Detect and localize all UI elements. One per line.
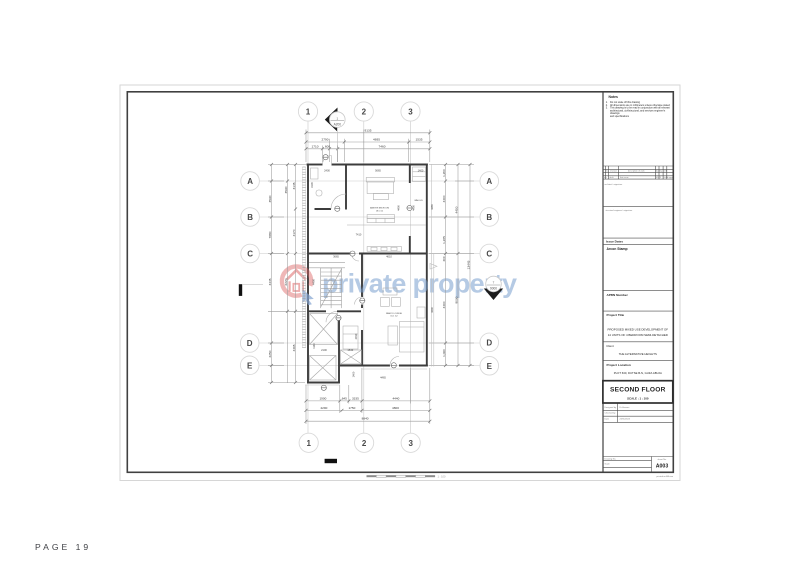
svg-text:4440: 4440 [392,396,399,400]
svg-text:B: B [247,213,253,222]
svg-text:1900: 1900 [319,396,326,400]
svg-text:Designed by: Designed by [605,407,618,409]
svg-text:23/05/2023: 23/05/2023 [620,419,631,421]
svg-text:draft: draft [610,176,614,179]
svg-text:1535: 1535 [416,138,423,142]
svg-text:600: 600 [325,144,330,148]
svg-text:1140: 1140 [312,343,316,349]
svg-text:1540: 1540 [347,348,353,352]
svg-text:2790: 2790 [322,138,329,142]
svg-text:C: C [486,250,492,259]
svg-text:1,200: 1,200 [442,169,446,177]
svg-text:5665: 5665 [375,169,381,173]
svg-text:Issue Dates: Issue Dates [606,239,623,243]
svg-text:645: 645 [342,396,347,400]
svg-text:MASTER BEDROOM: MASTER BEDROOM [370,207,390,210]
svg-text:3335: 3335 [352,396,359,400]
svg-text:9135: 9135 [365,128,372,132]
svg-text:E: E [487,362,493,371]
svg-text:3590: 3590 [284,186,288,193]
svg-text:A: A [486,177,492,186]
svg-text:A200: A200 [334,122,342,126]
svg-text:4465: 4465 [380,375,386,379]
svg-text:no.: no. [606,171,609,173]
svg-text:2930: 2930 [354,333,358,339]
svg-text:Checked by: Checked by [605,413,617,415]
svg-text:4610: 4610 [386,254,392,258]
svg-text:4400: 4400 [312,278,316,285]
svg-text:4440: 4440 [430,307,434,313]
svg-text:D: D [486,338,492,347]
svg-text:14 UNITS OF 4 BEDROOM SEMI-DET: 14 UNITS OF 4 BEDROOM SEMI-DETACHED [608,333,668,337]
svg-text:B: B [486,213,492,222]
svg-text:FAMILY LOUNGE: FAMILY LOUNGE [386,312,403,315]
svg-text:2400: 2400 [324,169,330,173]
svg-text:3: 3 [408,439,413,448]
svg-text:4400: 4400 [397,205,401,211]
svg-text:9000: 9000 [490,287,497,291]
svg-text:Project Location: Project Location [607,363,631,367]
svg-text:4800: 4800 [392,406,399,410]
svg-text:2290: 2290 [320,406,327,410]
svg-text:1,060: 1,060 [442,349,446,357]
svg-text:8840: 8840 [362,417,369,421]
svg-text:3590: 3590 [268,195,272,202]
svg-text:16.1 m2: 16.1 m2 [390,316,398,318]
svg-text:PLOT 630, DUTSE B-N, GUZA ABUJ: PLOT 630, DUTSE B-N, GUZA ABUJA [614,371,662,375]
svg-text:4400: 4400 [454,206,458,213]
svg-text:8090: 8090 [454,296,458,303]
svg-text:PROPOSED MIXED USE DEVELOPMENT: PROPOSED MIXED USE DEVELOPMENT OF [608,327,669,331]
svg-text:4465: 4465 [430,204,434,210]
svg-text:rev: rev [604,177,607,179]
svg-text:7460: 7460 [379,144,386,148]
svg-text:7880: 7880 [268,231,272,238]
svg-text:4400: 4400 [412,205,416,211]
svg-text:E: E [247,361,253,370]
svg-text:1: 1 [306,439,311,448]
svg-text:THE ALTERNATIVE HEIGHTS: THE ALTERNATIVE HEIGHTS [619,352,657,356]
svg-text:1,225: 1,225 [442,236,446,244]
svg-text:3: 3 [408,108,413,117]
svg-text:1750: 1750 [348,406,355,410]
svg-text:3665: 3665 [333,254,339,258]
svg-text:7410: 7410 [356,233,362,237]
svg-text:4400: 4400 [442,195,446,202]
svg-text:sheet No.: sheet No. [658,458,667,461]
svg-text:Drawing No.: Drawing No. [605,458,617,461]
svg-text:PAGE 19: PAGE 19 [35,542,91,552]
svg-text:SCALE : 1 : 100: SCALE : 1 : 100 [627,396,649,400]
svg-text:2250: 2250 [268,350,272,357]
svg-text:A003: A003 [656,463,669,469]
svg-text:3.: 3. [606,107,608,110]
svg-text:1: 1 [306,108,311,117]
svg-text:05/23: 05/23 [656,177,662,179]
svg-text:400: 400 [442,256,446,261]
svg-text:and specifications: and specifications [610,115,630,118]
svg-text:1 : 100: 1 : 100 [438,475,446,479]
svg-text:printed on A3 size: printed on A3 size [657,475,674,478]
svg-text:revision: revision [610,171,617,173]
svg-text:description of work: description of work [628,170,645,173]
svg-text:4400: 4400 [442,301,446,308]
svg-text:chk: chk [664,171,667,173]
svg-text:first issue: first issue [620,176,629,179]
svg-text:Notes: Notes [609,95,619,99]
svg-text:2: 2 [362,439,367,448]
svg-text:APBN Number: APBN Number [607,293,629,297]
svg-text:by: by [660,171,662,173]
svg-text:SECOND FLOOR: SECOND FLOOR [610,387,666,394]
svg-text:3145: 3145 [292,182,296,189]
svg-text:D: D [247,339,253,348]
svg-text:4465: 4465 [292,344,296,351]
svg-text:1400: 1400 [418,169,424,173]
svg-text:Scale: Scale [605,464,611,466]
svg-text:4170: 4170 [292,229,296,236]
svg-text:chkd appr: chkd appr [664,177,673,179]
svg-text:3145: 3145 [310,182,314,188]
svg-text:Arcon Stamp: Arcon Stamp [607,247,628,251]
svg-text:2: 2 [362,108,367,117]
svg-text:1400: 1400 [351,371,355,377]
svg-text:13443: 13443 [466,260,470,269]
svg-text:A: A [247,177,253,186]
svg-text:WALK-IN: WALK-IN [414,199,423,202]
svg-text:18.5 m2: 18.5 m2 [376,210,384,212]
svg-text:architect's signature: architect's signature [605,183,624,186]
svg-text:Dr Hassan: Dr Hassan [620,406,631,409]
svg-text:2100: 2100 [321,348,327,352]
svg-text:Project Title: Project Title [607,313,625,317]
svg-text:1710: 1710 [312,144,319,148]
svg-text:C: C [247,250,253,259]
svg-text:6220: 6220 [284,278,288,285]
svg-text:Client: Client [606,344,614,348]
svg-text:3445: 3445 [268,278,272,285]
svg-text:4695: 4695 [373,138,380,142]
svg-text:structural engineer's signatur: structural engineer's signature [606,209,634,212]
